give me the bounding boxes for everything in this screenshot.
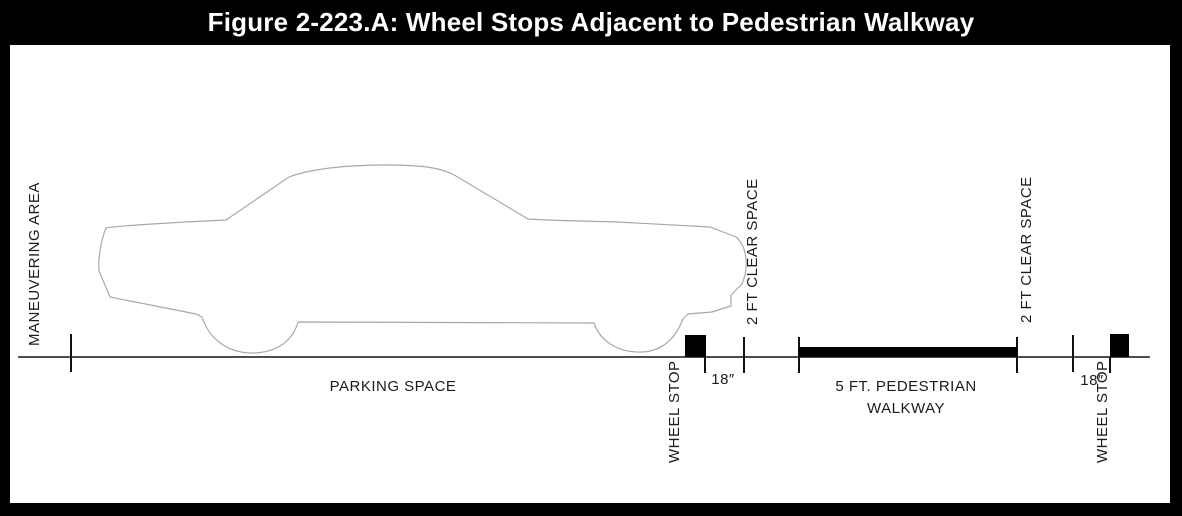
pedestrian-walkway-label: 5 FT. PEDESTRIAN WALKWAY	[806, 376, 1006, 420]
left-wheel-stop-label: WHEEL STOP	[666, 363, 684, 463]
left-wheel-stop-block	[685, 335, 706, 357]
pedestrian-walkway-label-line1: 5 FT. PEDESTRIAN	[806, 376, 1006, 398]
left-18in-dimension: 18″	[701, 371, 745, 389]
pedestrian-walkway-label-line2: WALKWAY	[806, 398, 1006, 420]
car-outline-icon	[99, 165, 746, 353]
parking-space-label: PARKING SPACE	[293, 378, 493, 396]
figure-frame: Figure 2-223.A: Wheel Stops Adjacent to …	[0, 0, 1182, 516]
diagram-graphics	[0, 0, 1182, 516]
maneuvering-area-label: MANEUVERING AREA	[26, 176, 44, 346]
left-clear-space-label: 2 FT CLEAR SPACE	[744, 183, 762, 325]
pedestrian-walkway-bar	[799, 347, 1017, 357]
right-wheel-stop-label: WHEEL STOP	[1094, 363, 1112, 463]
right-clear-space-label: 2 FT CLEAR SPACE	[1018, 181, 1036, 323]
right-wheel-stop-block	[1110, 334, 1129, 357]
